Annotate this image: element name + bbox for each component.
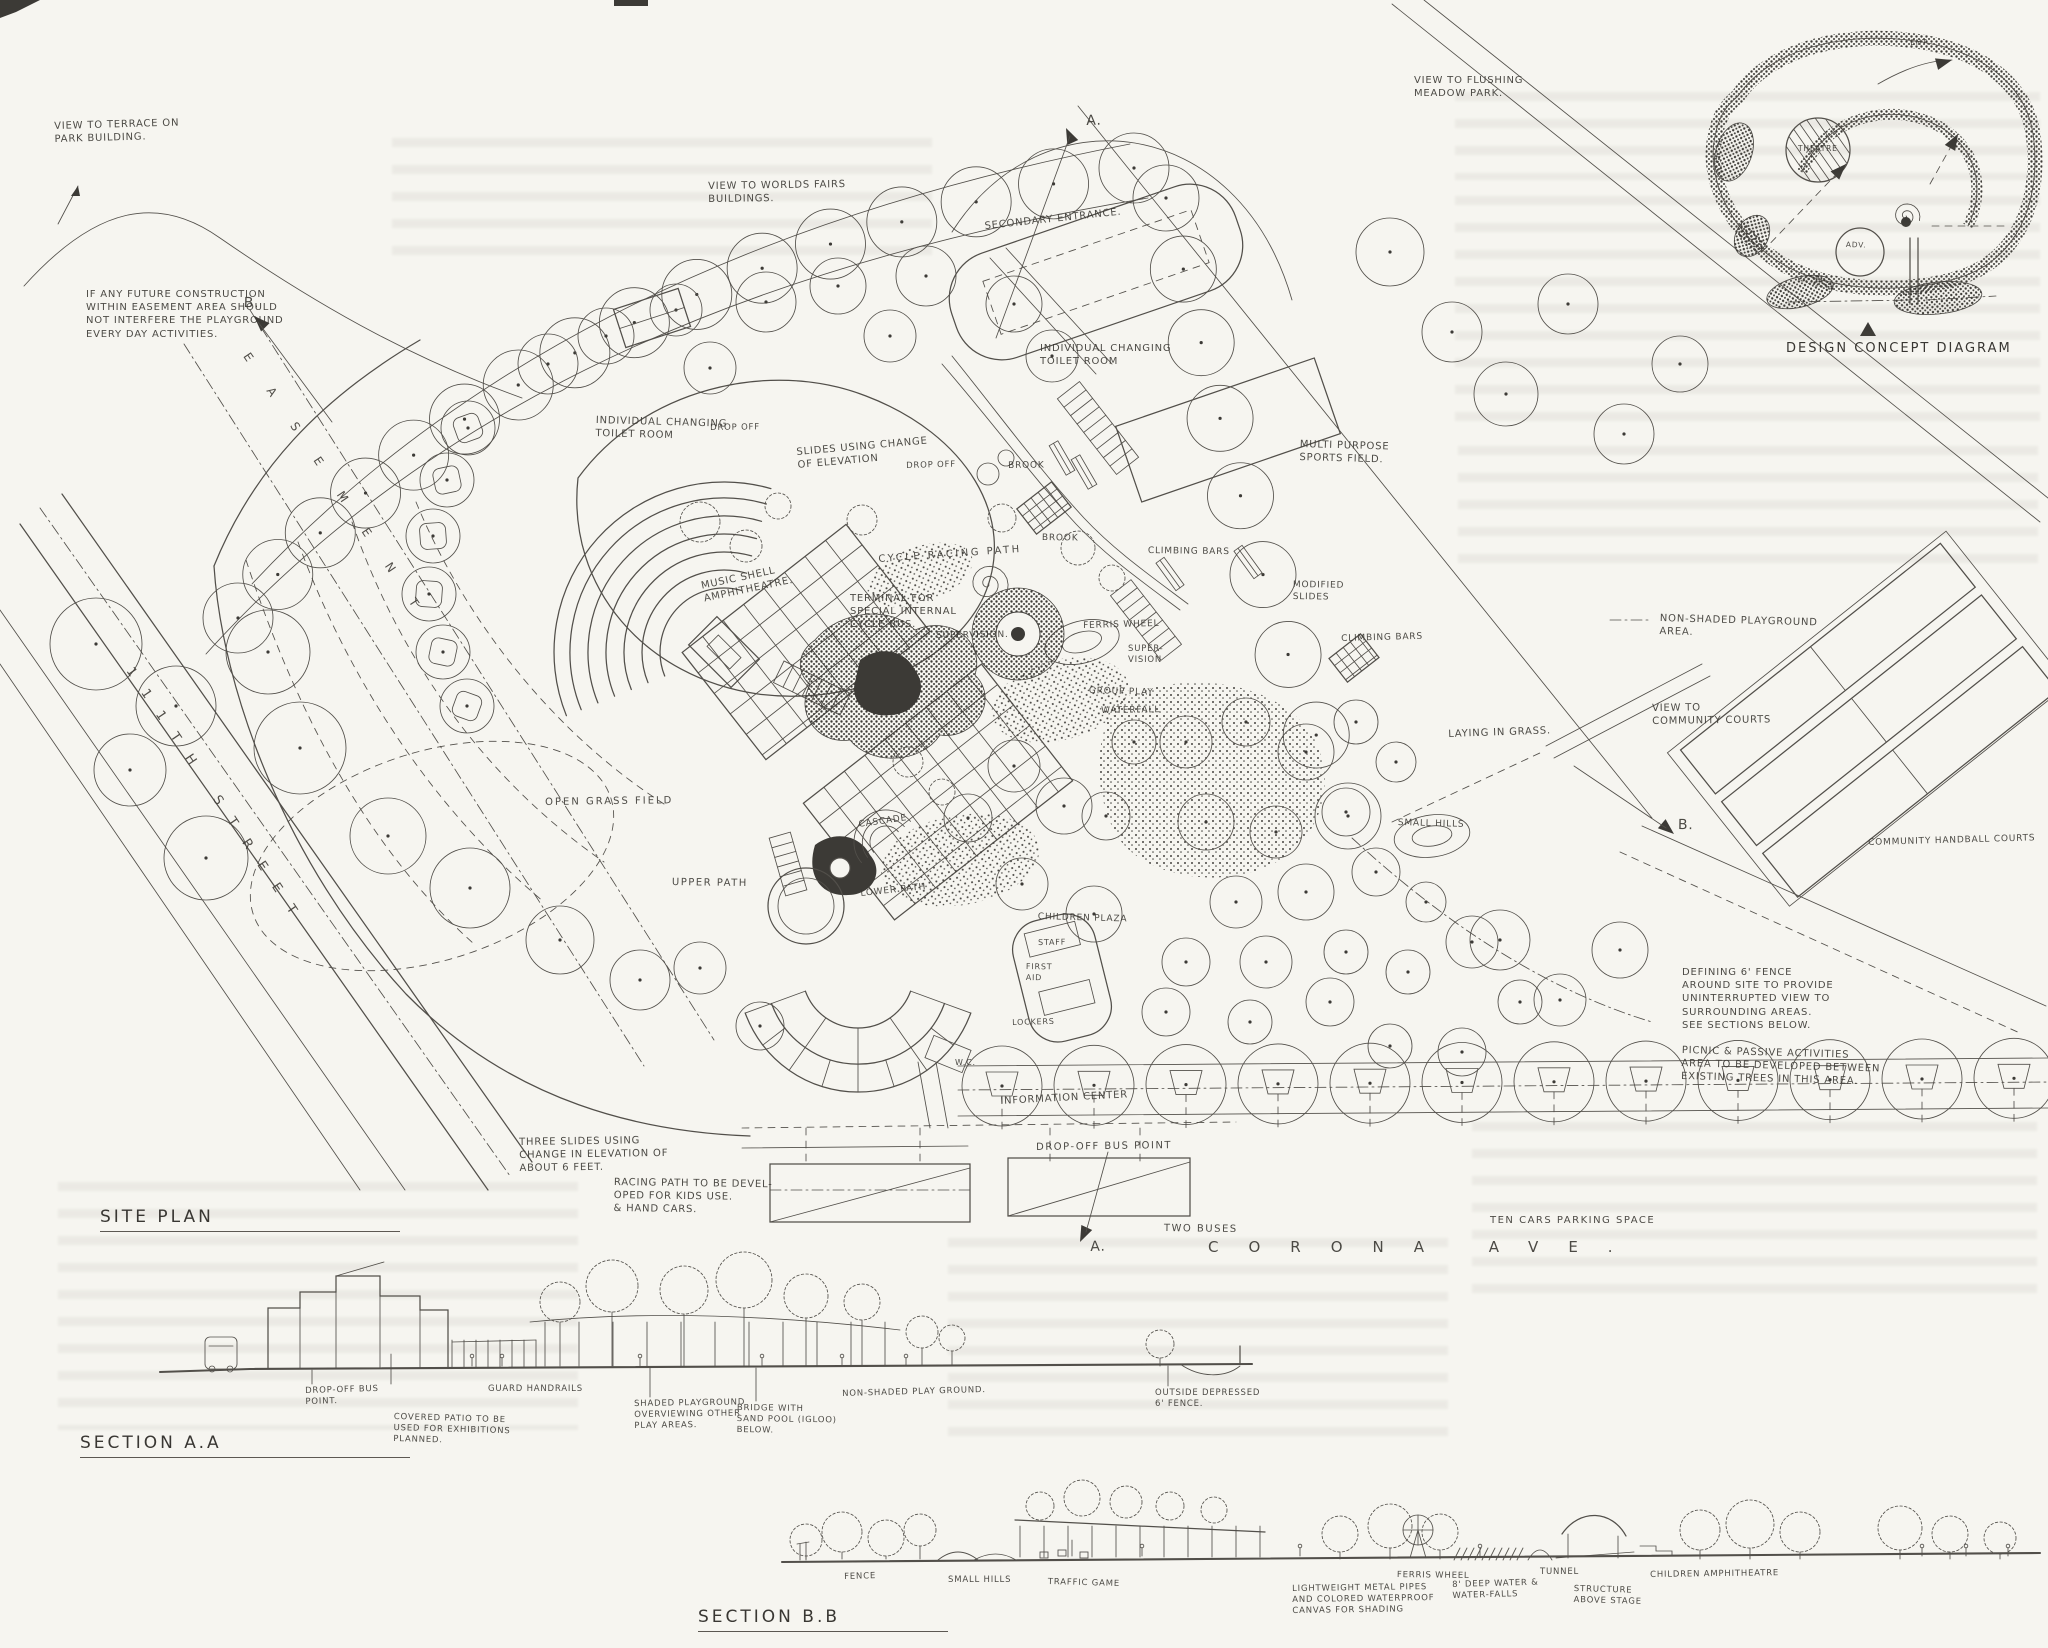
plan-annotation: VIEW TO COMMUNITY COURTS <box>1652 700 1771 728</box>
plan-annotation: CHILDREN PLAZA <box>1038 912 1128 926</box>
section-bb-annotation: TRAFFIC GAME <box>1048 1577 1120 1590</box>
site-plan-title: SITE PLAN <box>100 1206 400 1232</box>
plan-annotation: DROP OFF <box>710 422 760 434</box>
plan-annotation: WATERFALL <box>1101 705 1160 718</box>
section-aa-annotation: DROP-OFF BUS POINT. <box>305 1384 379 1408</box>
plan-annotation: THREE SLIDES USING CHANGE IN ELEVATION O… <box>519 1134 669 1176</box>
plan-annotation: BROOK <box>1008 460 1045 472</box>
section-aa-annotation: GUARD HANDRAILS <box>488 1384 583 1395</box>
section-bb-annotation: FENCE <box>844 1571 876 1583</box>
section-aa-title: SECTION A.A <box>80 1432 410 1458</box>
concept-annotation: ADV. <box>1846 240 1867 250</box>
plan-annotation: STAFF <box>1038 938 1066 949</box>
plan-annotation: MODIFIED SLIDES <box>1293 580 1345 604</box>
plan-annotation: VIEW TO TERRACE ON PARK BUILDING. <box>54 117 180 147</box>
plan-annotation: INDIVIDUAL CHANGING TOILET ROOM <box>595 414 727 444</box>
plan-annotation: CLIMBING BARS <box>1148 546 1230 559</box>
section-aa-annotation: COVERED PATIO TO BE USED FOR EXHIBITIONS… <box>393 1412 511 1449</box>
section-aa-annotation: BRIDGE WITH SAND POOL (IGLOO) BELOW. <box>737 1403 838 1438</box>
plan-annotation: FERRIS WHEEL <box>1083 619 1160 633</box>
plan-annotation: MULTI PURPOSE SPORTS FIELD. <box>1299 438 1389 467</box>
plan-annotation: TEN CARS PARKING SPACE <box>1490 1214 1655 1227</box>
plan-annotation: A. <box>1090 1238 1106 1257</box>
plan-annotation: VIEW TO WORLDS FAIRS BUILDINGS. <box>708 178 846 206</box>
bleed-through-text <box>948 1238 1448 1443</box>
plan-annotation: B. <box>243 294 259 313</box>
plan-annotation: SUPERVISION. <box>936 630 1009 643</box>
plan-annotation: A. <box>1086 112 1102 131</box>
section-bb-annotation: STRUCTURE ABOVE STAGE <box>1573 1584 1642 1608</box>
section-bb-annotation: SMALL HILLS <box>948 1575 1011 1586</box>
bleed-through-text <box>1455 92 2040 180</box>
section-bb-annotation: TUNNEL <box>1540 1567 1579 1578</box>
plan-annotation: FIRST AID <box>1026 962 1053 983</box>
plan-annotation: TERMINAL FOR SPECIAL INTERNAL CYCLE BUS. <box>850 592 957 632</box>
plan-annotation: OPEN GRASS FIELD <box>545 794 673 809</box>
scanned-site-plan-sheet: SITE PLAN SECTION A.A SECTION B.B DESIGN… <box>0 0 2048 1648</box>
plan-annotation: NON-SHADED PLAYGROUND AREA. <box>1659 612 1818 643</box>
plan-annotation: BROOK <box>1042 533 1079 545</box>
plan-annotation: INDIVIDUAL CHANGING TOILET ROOM <box>1040 342 1171 368</box>
bleed-through-text <box>1455 196 2040 434</box>
plan-annotation: DROP-OFF BUS POINT <box>1036 1139 1172 1154</box>
concept-annotation: ENT. <box>1910 37 1930 47</box>
section-bb-annotation: LIGHTWEIGHT METAL PIPES AND COLORED WATE… <box>1292 1582 1435 1618</box>
bleed-through-text <box>1472 1122 2037 1297</box>
plan-annotation: CLIMBING BARS <box>1341 632 1423 646</box>
plan-annotation: RACING PATH TO BE DEVEL- OPED FOR KIDS U… <box>613 1176 772 1218</box>
street-label-corona-ave: CORONA AVE. <box>1208 1238 1643 1258</box>
plan-annotation: UPPER PATH <box>672 876 748 890</box>
plan-annotation: SMALL HILLS <box>1398 818 1465 832</box>
concept-annotation: THEATRE <box>1798 144 1838 154</box>
section-aa-annotation: SHADED PLAYGROUND OVERVIEWING OTHER PLAY… <box>634 1397 746 1432</box>
bleed-through-text <box>392 138 932 266</box>
section-bb-annotation: CHILDREN AMPHITHEATRE <box>1650 1568 1779 1581</box>
plan-annotation: LOCKERS <box>1012 1017 1055 1029</box>
plan-annotation: SUPER- VISION <box>1128 644 1164 666</box>
plan-annotation: TWO BUSES <box>1164 1222 1238 1236</box>
plan-annotation: B. <box>1678 816 1694 835</box>
concept-diagram-title: DESIGN CONCEPT DIAGRAM <box>1786 340 2012 360</box>
section-aa-annotation: OUTSIDE DEPRESSED 6' FENCE. <box>1155 1388 1260 1410</box>
plan-annotation: DROP OFF <box>906 460 956 473</box>
plan-annotation: VIEW TO FLUSHING MEADOW PARK. <box>1414 74 1523 100</box>
section-bb-annotation: 8' DEEP WATER & WATER-FALLS <box>1452 1578 1539 1603</box>
plan-annotation: DEFINING 6' FENCE AROUND SITE TO PROVIDE… <box>1682 966 1833 1032</box>
plan-annotation: GROUP PLAY <box>1089 686 1154 700</box>
bleed-through-text <box>1458 446 2038 564</box>
plan-annotation: PICNIC & PASSIVE ACTIVITIES AREA TO BE D… <box>1681 1044 1881 1089</box>
section-bb-title: SECTION B.B <box>698 1606 948 1632</box>
plan-annotation: W.C. <box>955 1058 976 1069</box>
